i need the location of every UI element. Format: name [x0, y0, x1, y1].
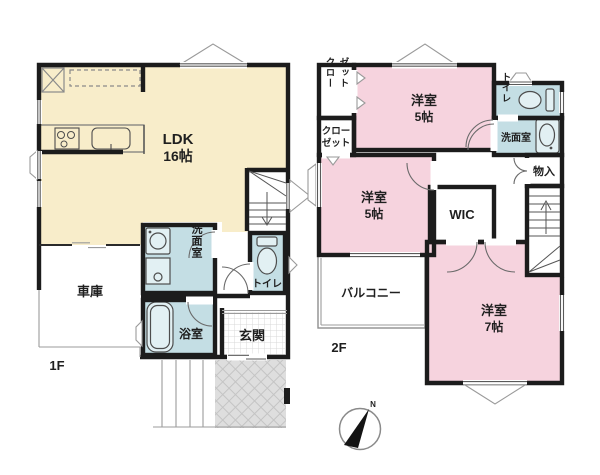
- bathroom-label: 浴室: [179, 326, 203, 341]
- floor-1f: LDK 16帖 車庫 洗面室 浴室 トイレ 玄関 1F: [30, 44, 310, 428]
- vanity-1f: [146, 258, 170, 284]
- stairwell-window-1f: [290, 180, 310, 212]
- washroom-1f-label: 洗面室: [190, 222, 203, 259]
- garage-label: 車庫: [77, 284, 103, 299]
- toilet-2f-label: トイレ: [500, 72, 512, 104]
- stairs-1f: [249, 171, 286, 225]
- ldk-label: LDK: [163, 131, 194, 148]
- floor-2f: 洋室 5帖 洋室 5帖 洋室 7帖 クロー ゼット クロー ゼット WIC トイ…: [308, 44, 565, 404]
- closet-top-label-col2: ゼット: [338, 57, 350, 89]
- basin-2f: [536, 119, 559, 153]
- bedroom-top-size: 5帖: [415, 109, 434, 124]
- entrance-label: 玄関: [239, 328, 265, 343]
- floorplan-drawing: LDK 16帖 車庫 洗面室 浴室 トイレ 玄関 1F: [0, 0, 600, 475]
- balcony-label: バルコニー: [341, 286, 401, 300]
- bath-window: [136, 321, 142, 346]
- bedroom-main-label: 洋室: [481, 303, 507, 318]
- floor1-label: 1F: [49, 358, 64, 373]
- bay-window-left-2f: [308, 164, 316, 206]
- toilet-2f-roof-window: [510, 73, 531, 81]
- washer: [146, 228, 170, 254]
- compass-north-label: N: [370, 400, 376, 409]
- toilet-1f-fixture: [257, 237, 277, 274]
- floorplan-page: LDK 16帖 車庫 洗面室 浴室 トイレ 玄関 1F: [0, 0, 600, 475]
- bay-window-top-2f: [394, 44, 455, 64]
- compass: N: [340, 400, 381, 450]
- porch-hatch: [215, 360, 286, 428]
- bay-window-bottom-2f: [465, 385, 525, 404]
- bedroom-mid-size: 5帖: [365, 206, 384, 221]
- closet-lower-label-line1: クロー: [322, 126, 351, 137]
- bedroom-top-label: 洋室: [411, 93, 437, 108]
- bay-window-top-1f: [181, 44, 246, 64]
- toilet-1f-label: トイレ: [252, 278, 282, 290]
- wic-label: WIC: [449, 207, 475, 222]
- bedroom-mid-floor: [319, 155, 434, 255]
- bay-window-left-1f: [30, 151, 37, 179]
- porch-post: [284, 388, 290, 404]
- bedroom-main-size: 7帖: [485, 319, 504, 334]
- storage-label: 物入: [533, 164, 555, 178]
- toilet-window-1f: [289, 257, 297, 273]
- ldk-size-label: 16帖: [163, 148, 193, 164]
- bathtub: [147, 302, 173, 352]
- bedroom-mid-label: 洋室: [361, 190, 387, 205]
- closet-top-label-col1: クロー: [324, 57, 336, 89]
- closet-lower-label-line2: ゼット: [322, 137, 351, 149]
- floor2-label: 2F: [331, 340, 346, 355]
- washroom-2f-label: 洗面室: [501, 131, 531, 144]
